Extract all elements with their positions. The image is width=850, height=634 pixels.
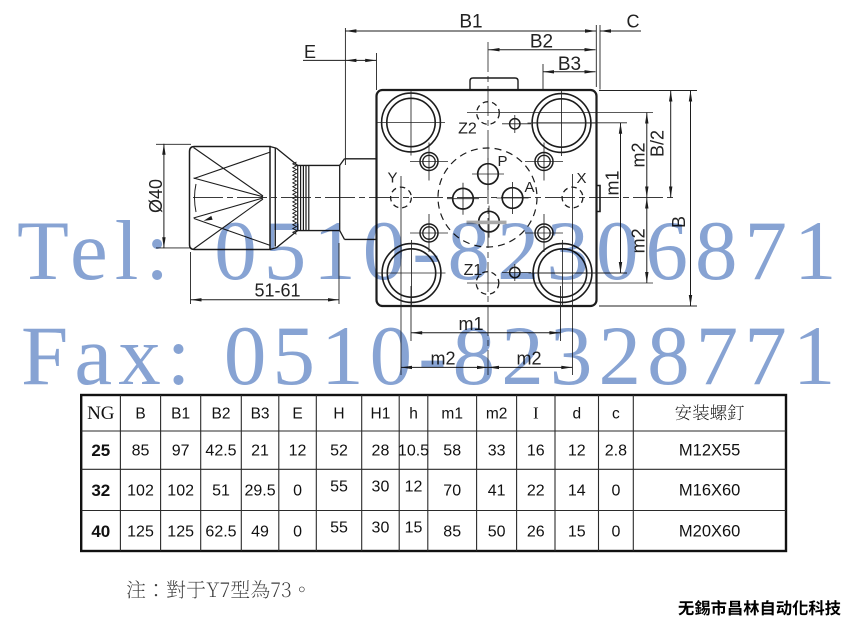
svg-text:10.5: 10.5 xyxy=(398,443,429,460)
svg-text:A: A xyxy=(524,179,534,196)
svg-text:I: I xyxy=(533,404,539,423)
svg-text:12: 12 xyxy=(289,443,307,460)
svg-text:33: 33 xyxy=(488,443,506,460)
svg-text:m1: m1 xyxy=(441,406,463,423)
svg-text:40: 40 xyxy=(91,522,110,541)
svg-text:P: P xyxy=(497,153,507,170)
svg-text:62.5: 62.5 xyxy=(205,523,236,540)
svg-text:125: 125 xyxy=(167,523,194,540)
svg-text:22: 22 xyxy=(527,482,545,499)
svg-text:NG: NG xyxy=(87,403,115,424)
svg-text:21: 21 xyxy=(251,443,269,460)
svg-text:58: 58 xyxy=(443,443,461,460)
svg-text:B3: B3 xyxy=(558,54,581,75)
svg-text:h: h xyxy=(409,406,418,423)
svg-text:102: 102 xyxy=(127,482,154,499)
svg-text:M20X60: M20X60 xyxy=(679,522,740,540)
svg-text:C: C xyxy=(627,12,640,32)
svg-text:30: 30 xyxy=(372,519,390,536)
svg-text:85: 85 xyxy=(443,523,461,540)
svg-text:41: 41 xyxy=(488,482,506,499)
svg-text:32: 32 xyxy=(91,481,110,500)
svg-text:85: 85 xyxy=(132,443,150,460)
svg-text:0: 0 xyxy=(611,482,620,499)
svg-text:m1: m1 xyxy=(603,170,623,195)
svg-text:0: 0 xyxy=(611,523,620,540)
svg-text:29.5: 29.5 xyxy=(244,482,275,499)
svg-text:B1: B1 xyxy=(171,406,190,423)
svg-text:B/2: B/2 xyxy=(648,130,668,157)
svg-text:H: H xyxy=(333,406,344,423)
svg-text:M12X55: M12X55 xyxy=(679,442,740,460)
svg-text:E: E xyxy=(292,406,302,423)
svg-text:51: 51 xyxy=(212,482,230,499)
svg-text:14: 14 xyxy=(568,482,586,499)
svg-text:50: 50 xyxy=(488,523,506,540)
svg-text:B: B xyxy=(135,406,145,423)
svg-text:H1: H1 xyxy=(371,406,391,423)
svg-text:d: d xyxy=(572,406,581,423)
svg-text:B1: B1 xyxy=(459,12,482,33)
svg-text:28: 28 xyxy=(372,443,390,460)
svg-text:Y: Y xyxy=(387,170,397,187)
svg-text:30: 30 xyxy=(372,478,390,495)
svg-text:16: 16 xyxy=(527,443,545,460)
svg-text:49: 49 xyxy=(251,523,269,540)
svg-text:52: 52 xyxy=(330,443,348,460)
svg-text:c: c xyxy=(612,406,620,423)
svg-text:55: 55 xyxy=(330,519,348,536)
svg-text:m2: m2 xyxy=(629,142,649,167)
svg-text:12: 12 xyxy=(568,443,586,460)
svg-text:2.8: 2.8 xyxy=(605,443,627,460)
svg-text:Z2: Z2 xyxy=(458,121,477,138)
svg-text:B3: B3 xyxy=(251,406,270,423)
svg-text:97: 97 xyxy=(172,443,190,460)
svg-text:70: 70 xyxy=(443,482,461,499)
svg-text:55: 55 xyxy=(330,478,348,495)
svg-text:M16X60: M16X60 xyxy=(679,481,740,499)
svg-text:26: 26 xyxy=(527,523,545,540)
svg-text:m2: m2 xyxy=(486,406,508,423)
svg-text:B2: B2 xyxy=(212,406,231,423)
svg-text:15: 15 xyxy=(568,523,586,540)
svg-text:E: E xyxy=(304,42,316,62)
svg-text:0: 0 xyxy=(293,523,302,540)
svg-text:42.5: 42.5 xyxy=(205,443,236,460)
svg-text:102: 102 xyxy=(167,482,194,499)
svg-text:12: 12 xyxy=(405,478,423,495)
svg-text:0: 0 xyxy=(293,482,302,499)
svg-text:B2: B2 xyxy=(530,32,553,53)
svg-text:15: 15 xyxy=(405,519,423,536)
svg-text:125: 125 xyxy=(127,523,154,540)
svg-text:25: 25 xyxy=(91,441,110,460)
svg-text:X: X xyxy=(576,170,586,187)
